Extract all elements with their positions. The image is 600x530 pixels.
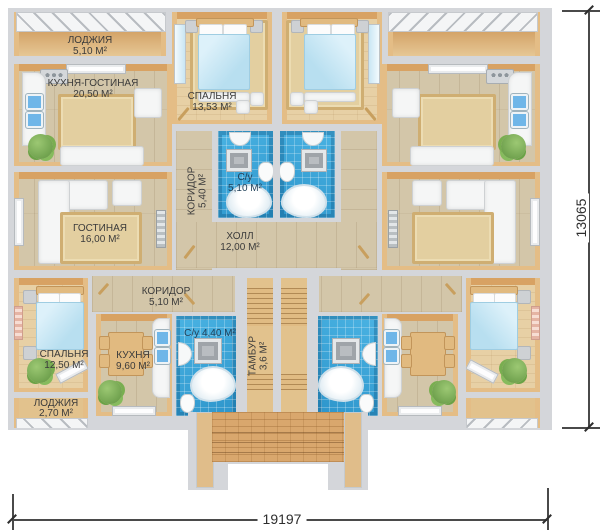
chair [401,354,412,368]
sink [384,330,399,346]
bed [36,302,84,350]
wall-band [382,64,387,166]
room-bathroom-upper-left: С/у5,10 М² [218,131,273,218]
room-loggia-bottom-left: ЛОДЖИЯ2,70 М² [14,398,88,428]
room-corridor-lower-right [319,276,462,312]
sink [26,94,43,110]
door [359,293,371,305]
chair [99,336,110,350]
dimension-label-width: 19197 [258,511,307,527]
sink [511,94,528,110]
porch [188,412,368,490]
sink [511,112,528,128]
room-label-tambour: ТАМБУР3,6 М² [249,336,270,376]
porch-step-lines [212,432,344,462]
dimension-extension [12,494,14,530]
plant [501,134,526,159]
wall-band [282,120,382,124]
wall-band [14,388,88,392]
armchair [392,88,420,118]
room-label-bathroom-upper: С/у5,10 М² [228,173,262,194]
washing-machine [194,338,222,364]
room-loggia-bottom-right [466,398,540,428]
room-label-corridor-upper: КОРИДОР5,40 М² [188,167,209,216]
plant [98,380,122,404]
sink [155,348,170,364]
rug [58,94,136,150]
hatch-glazing [388,12,538,32]
stool [290,92,304,106]
hatch-glazing [466,418,538,428]
wall-band [167,64,172,166]
sink [26,112,43,128]
stair-treads [281,288,307,326]
floor-plan: ЛОДЖИЯ5,10 М² СПАЛЬНЯ13,53 М² [0,0,600,530]
door [183,245,195,259]
sink [384,348,399,364]
washing-machine [332,338,360,364]
door [445,283,457,295]
room-loggia-top-left: ЛОДЖИЯ5,10 М² [14,12,166,56]
door [357,245,369,259]
room-bedroom-lower-right [466,278,540,392]
sink [155,330,170,346]
toilet [359,394,374,413]
chair [142,336,153,350]
stairs-tambour-right [281,278,307,412]
room-label-bedroom-lower: СПАЛЬНЯ12,50 М² [40,350,88,371]
room-label-living: ГОСТИНАЯ16,00 М² [73,224,127,245]
radiator [156,210,166,248]
wall-band [382,172,387,270]
door [364,107,377,121]
room-kitchen-living-left: КУХНЯ-ГОСТИНАЯ20,50 М² [14,64,172,166]
bathtub [318,366,364,402]
armchair [112,180,142,206]
room-label-loggia-top: ЛОДЖИЯ5,10 М² [68,36,113,56]
rug [418,94,496,150]
washing-machine [301,149,327,172]
stairs-tambour-left: ТАМБУР3,6 М² [247,278,273,412]
sink [362,342,376,366]
room-hall: ХОЛЛ12,00 М² [176,222,377,268]
armchair [412,180,442,206]
bed [304,34,356,90]
dimension-label-height: 13065 [573,194,589,243]
dimension-extension [547,488,549,530]
stool [304,100,318,114]
window [398,406,442,416]
wall-band [382,266,540,270]
washing-machine [226,149,252,172]
radiator [388,210,398,248]
room-bathroom-upper-right [280,131,335,218]
chair [401,336,412,350]
room-living-left: ГОСТИНАЯ16,00 М² [14,172,172,270]
window [112,406,156,416]
plant [28,134,53,159]
toilet [180,394,195,413]
room-label-loggia-bottom: ЛОДЖИЯ2,70 М² [34,399,79,418]
dimension-extension [562,10,600,12]
porch-wall [344,412,362,488]
sink [178,342,192,366]
hatch-glazing [16,12,166,32]
toilet [280,162,295,182]
room-living-right [382,172,540,270]
room-bathroom-lower-right [318,316,378,416]
chair [444,354,455,368]
wall-band [466,278,540,285]
chair [444,336,455,350]
room-label-kitchen: КУХНЯ9,60 М² [116,351,150,372]
stool [250,92,264,106]
room-bathroom-lower-left: С/у 4,40 М² [176,316,236,416]
stair-treads [247,288,273,326]
plant [432,380,456,404]
wall-band [466,388,540,392]
door [98,283,110,295]
wall-band [14,64,19,166]
room-bedroom-top-right [282,12,382,124]
room-label-corridor-lower: КОРИДОР5,10 М² [142,287,191,308]
room-corridor-lower-left: КОРИДОР5,10 М² [92,276,235,312]
stair-treads [281,374,307,390]
room-bedroom-top-left: СПАЛЬНЯ13,53 М² [172,12,272,124]
wall-band [535,64,540,166]
bed [198,34,250,90]
room-label-hall: ХОЛЛ12,00 М² [220,232,259,253]
sofa [60,146,144,166]
window [66,64,126,74]
nightstand [23,290,37,304]
rug [412,212,494,264]
dimension-extension [562,427,600,429]
bathtub [281,184,327,218]
dining-table [410,332,446,376]
wall-band [172,120,272,124]
wall-band [14,278,88,285]
wall-band [14,172,172,179]
wall-band [14,266,172,270]
room-kitchen-living-right [382,64,540,166]
room-label-bedroom-top: СПАЛЬНЯ13,53 М² [188,92,237,113]
stair-treads [247,374,273,390]
room-label-bathroom-lower: С/у 4,40 М² [184,329,236,340]
window [428,64,488,74]
window [368,24,380,84]
wall-band [167,172,172,270]
bathtub [190,366,236,402]
stool [236,100,250,114]
plant [502,358,527,383]
porch-ground [228,464,328,490]
sink [302,132,324,146]
radiator [14,306,23,340]
wall-band [382,172,540,179]
room-kitchen-lower-left: КУХНЯ9,60 М² [96,314,172,416]
bed [470,302,518,350]
hatch-glazing [16,418,88,428]
room-label-kitchen-living: КУХНЯ-ГОСТИНАЯ20,50 М² [48,79,139,100]
sofa [410,146,494,166]
window [14,198,24,246]
window [174,24,186,84]
room-bedroom-lower-left: СПАЛЬНЯ12,50 М² [14,278,88,392]
nightstand [517,290,531,304]
sink [229,132,251,146]
room-kitchen-lower-right [382,314,458,416]
chair [99,354,110,368]
window [530,198,540,246]
radiator [531,306,540,340]
room-loggia-top-right [388,12,540,56]
